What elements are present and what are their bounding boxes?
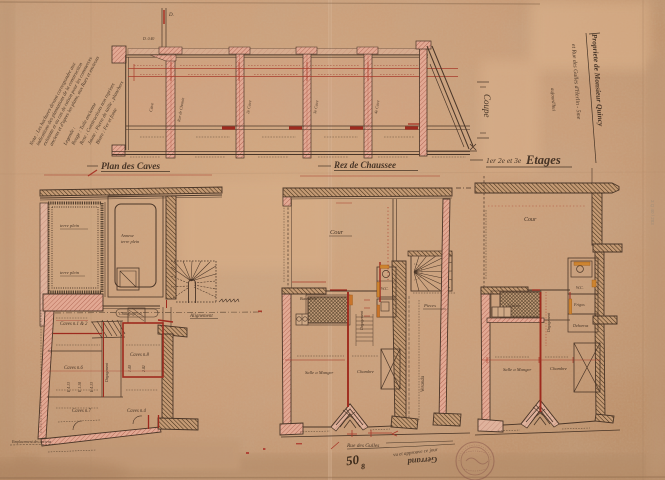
svg-text:Caves n.8: Caves n.8 <box>130 353 150 358</box>
svg-text:E 1.10: E 1.10 <box>78 382 82 393</box>
svg-text:Rez de Chaussee: Rez de Chaussee <box>333 160 396 170</box>
svg-text:Coupe: Coupe <box>482 94 492 118</box>
svg-text:Cour: Cour <box>330 229 344 236</box>
svg-text:terre plein: terre plein <box>60 223 80 228</box>
svg-text:W.C.: W.C. <box>381 286 389 291</box>
svg-text:Chambre: Chambre <box>550 366 567 371</box>
svg-text:1er 2e et 3e: 1er 2e et 3e <box>486 156 522 165</box>
svg-text:Emplacement des anciens: Emplacement des anciens <box>11 440 52 444</box>
svg-text:terre plein: terre plein <box>60 270 80 275</box>
svg-text:Caves n.4: Caves n.4 <box>127 409 147 414</box>
svg-text:Frigos: Frigos <box>573 302 585 307</box>
svg-text:Chambre: Chambre <box>357 369 374 374</box>
svg-text:Salle a Manger: Salle a Manger <box>503 367 532 372</box>
svg-text:Chauffage ctl: Chauffage ctl <box>119 311 143 316</box>
svg-text:Cour: Cour <box>524 217 537 223</box>
svg-text:Caves n.1 & 2: Caves n.1 & 2 <box>60 322 88 327</box>
svg-text:terre plein: terre plein <box>121 239 140 244</box>
svg-text:Etages: Etages <box>525 153 561 167</box>
svg-text:D.: D. <box>168 13 174 18</box>
svg-text:Plan des Caves: Plan des Caves <box>101 162 160 172</box>
svg-text:Cuisine: Cuisine <box>508 303 520 308</box>
svg-text:Caves n.7: Caves n.7 <box>72 409 92 414</box>
svg-text:50: 50 <box>345 452 360 469</box>
svg-text:W.C.: W.C. <box>576 285 584 290</box>
svg-text:Degagement: Degagement <box>105 362 109 383</box>
svg-text:Degagement: Degagement <box>360 310 364 331</box>
svg-text:Buanderie: Buanderie <box>300 296 317 301</box>
svg-text:E 4.13: E 4.13 <box>67 382 71 393</box>
svg-text:Debarras: Debarras <box>572 323 589 328</box>
svg-text:3 Q 40 / 283: 3 Q 40 / 283 <box>650 200 655 225</box>
svg-text:E 4.13: E 4.13 <box>90 382 94 393</box>
svg-text:Degagement: Degagement <box>547 312 551 333</box>
svg-text:Annexe: Annexe <box>120 233 134 238</box>
svg-text:Veranda: Veranda <box>421 375 426 392</box>
svg-text:D. 0.40: D. 0.40 <box>142 37 154 41</box>
svg-text:Gerrand: Gerrand <box>406 455 437 467</box>
svg-text:Pieces: Pieces <box>423 303 436 308</box>
svg-text:Caves n.6: Caves n.6 <box>64 366 84 371</box>
svg-text:Salle a Manger: Salle a Manger <box>305 370 334 375</box>
